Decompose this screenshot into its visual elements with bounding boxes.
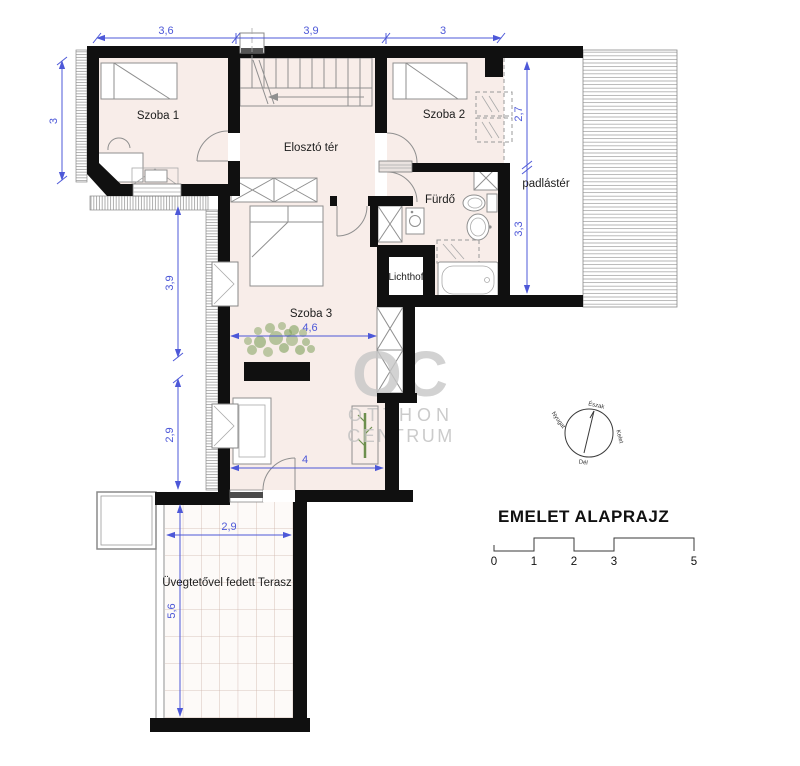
dim-szoba3-bottom: 4 — [302, 454, 308, 466]
bed-szoba2 — [393, 63, 467, 99]
watermark: OC OTTHON CENTRUM — [347, 338, 455, 446]
compass: Észak Kelet Dél Nyugat — [550, 400, 624, 466]
dim-szoba3-left-1: 3,9 — [164, 275, 176, 290]
compass-east: Kelet — [614, 429, 623, 444]
dim-left: 3 — [48, 118, 60, 124]
bed-szoba3 — [250, 206, 323, 286]
scale-bar: 0 1 2 3 5 — [491, 538, 697, 568]
watermark-line2: CENTRUM — [347, 426, 455, 446]
label-furdo: Fürdő — [425, 194, 455, 206]
label-szoba1: Szoba 1 — [137, 110, 179, 122]
scale-0: 0 — [491, 556, 497, 568]
bathtub — [438, 262, 498, 298]
label-szoba3: Szoba 3 — [290, 308, 332, 320]
label-terasz: Üvegtetővel fedett Terasz — [162, 577, 292, 589]
dim-terasz-h: 5,6 — [166, 603, 178, 618]
scale-3: 3 — [611, 556, 617, 568]
window-szoba3-lower — [212, 404, 238, 448]
compass-west: Nyugat — [550, 411, 566, 430]
dim-top-3: 3 — [440, 25, 446, 37]
dim-padlas-2: 3,3 — [513, 221, 525, 236]
dim-szoba3-left-2: 2,9 — [164, 427, 176, 442]
dim-szoba3-mid: 4,6 — [302, 322, 317, 334]
label-szoba2: Szoba 2 — [423, 109, 465, 121]
label-eloszto: Elosztó tér — [284, 142, 338, 154]
terrace-grid — [165, 502, 293, 718]
wardrobe-eloszto — [231, 178, 317, 202]
window-szoba3-upper — [212, 262, 238, 306]
door-jamb-sill — [379, 161, 412, 172]
washing-machine — [406, 208, 424, 234]
roof-area — [583, 50, 677, 307]
bed-szoba1 — [101, 63, 177, 99]
compass-south: Dél — [578, 459, 588, 466]
label-lichthof: Lichthof — [388, 272, 423, 283]
dim-top-1: 3,6 — [158, 25, 173, 37]
dim-padlas-1: 2,7 — [513, 106, 525, 121]
scale-5: 5 — [691, 556, 697, 568]
window-szoba1-sill — [133, 184, 181, 196]
planter-box — [244, 362, 310, 381]
floor-plan-drawing: OC OTTHON CENTRUM — [0, 0, 800, 766]
window-szoba3-bottom — [230, 490, 263, 502]
watermark-line1: OTTHON — [348, 405, 454, 425]
toilet — [463, 194, 497, 212]
scale-2: 2 — [571, 556, 577, 568]
plan-title: EMELET ALAPRAJZ — [498, 507, 669, 526]
dim-terasz-w: 2,9 — [221, 521, 236, 533]
scale-1: 1 — [531, 556, 537, 568]
label-padlas: padlástér — [522, 178, 569, 190]
dim-top-2: 3,9 — [303, 25, 318, 37]
floor-plan-page: OC OTTHON CENTRUM — [0, 0, 800, 766]
lower-skylight-box — [97, 492, 156, 549]
sofa-szoba3 — [233, 398, 271, 464]
